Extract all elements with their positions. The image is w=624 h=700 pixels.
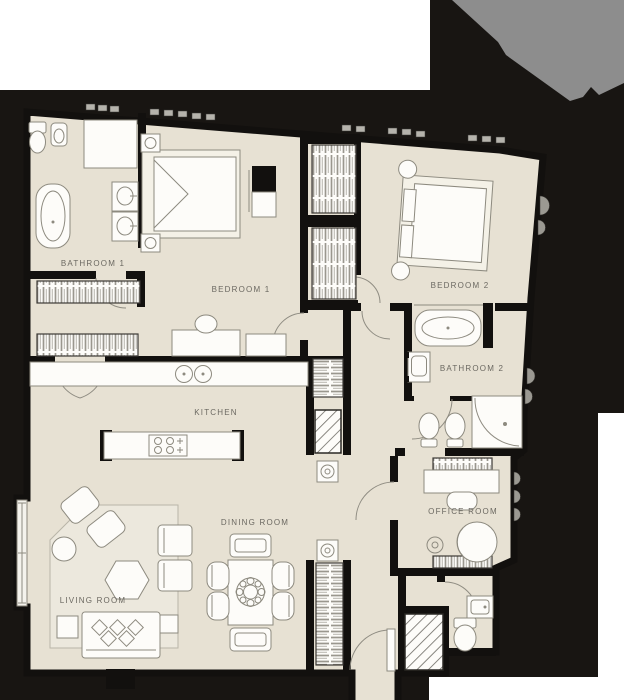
- sofa-icon: [82, 612, 160, 658]
- floor-plan-canvas: BATHROOM 1 BEDROOM 1 BEDROOM 2 BATHROOM …: [0, 0, 624, 700]
- closet-icon: [37, 281, 140, 303]
- room-label-kitchen: KITCHEN: [194, 408, 238, 417]
- dresser-icon: [246, 334, 286, 356]
- shelf-unit-icon: [313, 359, 343, 397]
- room-label-living-room: LIVING ROOM: [60, 596, 127, 605]
- bay-window: [17, 500, 27, 606]
- pantry-closet-icon: [316, 563, 343, 665]
- bidet-icon: [445, 413, 465, 447]
- desk-icon: [424, 470, 499, 493]
- exterior-chimney-bump: [106, 669, 135, 689]
- dining-table-icon: [228, 560, 273, 625]
- toilet-icon: [454, 618, 476, 651]
- bathtub-icon: [36, 184, 70, 248]
- spotlight-icon: [317, 461, 338, 482]
- kitchen-island-icon: [104, 432, 240, 459]
- dining-chair-icon: [272, 592, 294, 620]
- sink-icon: [51, 123, 67, 146]
- wardrobe-icon: [312, 145, 356, 213]
- shower-icon: [84, 120, 137, 168]
- room-label-dining-room: DINING ROOM: [221, 518, 289, 527]
- kitchen-counter-icon: [30, 362, 308, 386]
- room-label-bedroom-1: BEDROOM 1: [212, 285, 271, 294]
- dining-bench-icon: [230, 628, 271, 651]
- dining-bench-icon: [230, 534, 271, 557]
- top-left-white-mask: [0, 0, 430, 90]
- bottom-right-white-mask: [429, 677, 624, 700]
- toilet-icon: [29, 122, 46, 153]
- living-room-furniture: [50, 484, 192, 658]
- armchair-icon: [158, 560, 192, 591]
- nightstand-icon: [141, 234, 160, 252]
- right-white-mask: [598, 413, 624, 700]
- wardrobe-icon: [312, 228, 356, 299]
- room-label-bedroom-2: BEDROOM 2: [431, 281, 490, 290]
- dining-chair-icon: [207, 592, 229, 620]
- room-label-bathroom-1: BATHROOM 1: [61, 259, 125, 268]
- double-bed-icon: [142, 150, 240, 238]
- side-table-icon: [160, 615, 178, 633]
- spotlight-icon: [317, 540, 338, 561]
- floor-plan-image: BATHROOM 1 BEDROOM 1 BEDROOM 2 BATHROOM …: [0, 0, 624, 700]
- radiator-icon: [433, 458, 492, 470]
- tv-unit-icon: [249, 166, 276, 217]
- dining-chair-icon: [272, 562, 294, 590]
- sink-icon: [404, 352, 430, 382]
- room-label-bathroom-2: BATHROOM 2: [440, 364, 504, 373]
- shaft-hatch: [315, 410, 341, 453]
- dining-chair-icon: [207, 562, 229, 590]
- side-table-icon: [57, 616, 78, 638]
- armchair-icon: [158, 525, 192, 556]
- toilet-icon: [419, 413, 439, 447]
- sink-icon: [467, 596, 493, 618]
- room-label-office-room: OFFICE ROOM: [428, 507, 498, 516]
- nightstand-icon: [141, 134, 160, 152]
- side-table-icon: [52, 537, 76, 561]
- vanity-icon: [112, 182, 138, 241]
- shaft-hatch: [405, 614, 443, 670]
- bathtub-icon: [415, 310, 481, 346]
- double-bed-icon: [397, 175, 493, 271]
- closet-icon: [37, 334, 138, 356]
- shower-icon: [472, 396, 522, 448]
- entry-door-leaf: [387, 629, 395, 671]
- lounge-chair-icon: [457, 522, 497, 562]
